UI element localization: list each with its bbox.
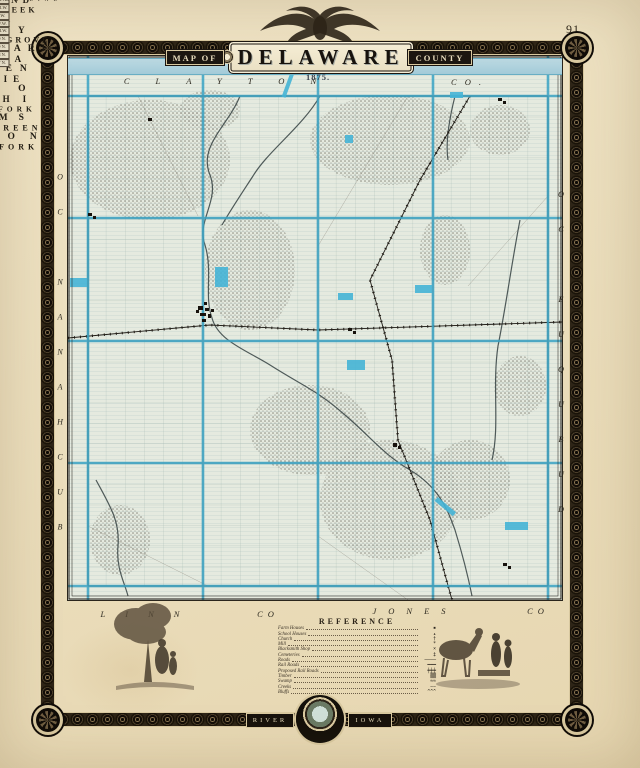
legend-leader (293, 688, 418, 689)
map-note-text: CORRECTION LINE (0, 0, 62, 3)
corner-rosette-icon (562, 705, 592, 735)
map-art (68, 56, 562, 600)
range-label-text: T.89 N. (0, 44, 6, 49)
legend: REFERENCE Farm Houses ▪ School Houses ▴ … (278, 617, 436, 695)
legend-leader (288, 645, 418, 646)
legend-item-label: Bluffs (278, 690, 289, 695)
border-medallion-icon (296, 695, 344, 743)
map-canvas (68, 56, 562, 600)
range-label-text: T.90 N. (0, 36, 6, 41)
border-word-left: RIVER (246, 713, 294, 728)
legend-leader (312, 650, 418, 651)
township-name: SOUTH FORK (0, 143, 38, 152)
legend-leader (302, 656, 418, 657)
title-prefix-banner: MAP OF (166, 50, 224, 65)
range-label: R.IV.W. (0, 20, 9, 28)
township-name: HAZELGREEN (0, 124, 42, 133)
legend-leader (292, 661, 418, 662)
legend-item-label: Roads (278, 658, 290, 663)
legend-item-label: Proposed Rail Roads (278, 669, 319, 674)
map-note: CORRECTION LINE (0, 0, 62, 3)
title-county-name: DELAWARE (237, 45, 404, 70)
range-tier-labels: R.VI.W.R.VI.W.R.V.W.R.IV.W.R.III.W.T.90 … (0, 0, 19, 71)
legend-item-label: Cemeteries (278, 653, 300, 658)
range-label-text: T.88 N. (0, 52, 6, 57)
range-label: R.VI.W. (0, 4, 9, 12)
legend-item-label: Mill (278, 642, 286, 647)
range-label-text: R.III.W. (0, 28, 7, 33)
township-name: RICHLAND (0, 0, 34, 5)
legend-leader (294, 677, 418, 678)
range-label-text: R.VI.W. (0, 5, 7, 10)
atlas-page: 91 RIVER IOWA (0, 0, 640, 768)
corner-rosette-icon (33, 705, 63, 735)
range-label: T.89 N. (0, 43, 9, 51)
legend-row: Bluffs ^^^ (278, 690, 436, 695)
range-label-text: R.V.W. (0, 13, 5, 18)
legend-title: REFERENCE (278, 617, 436, 626)
legend-item-label: Timber (278, 674, 292, 679)
township-label: HONEY CREEK (0, 6, 55, 15)
legend-leader (294, 640, 418, 641)
township-label: ELK (0, 14, 55, 25)
township-name: ELK (0, 14, 32, 25)
range-label-text: R.VI.W. (0, 0, 7, 2)
map-annotations: CORRECTION LINEMANCHESTERGrove Creek (0, 0, 124, 16)
township-name: ADAMS (0, 113, 35, 123)
legend-leader (321, 672, 418, 673)
range-label-text: T.87 N. (0, 60, 6, 65)
legend-leader (294, 682, 418, 683)
county-label-linn-co: CO (257, 609, 279, 619)
legend-item-label: Blacksmith Shop (278, 647, 310, 652)
legend-item-label: Farm Houses (278, 626, 304, 631)
legend-leader (301, 666, 418, 667)
corner-rosette-icon (33, 33, 63, 63)
legend-item-label: School Houses (278, 632, 306, 637)
township-name: NORTH FORK (0, 105, 36, 114)
legend-item-label: Swamp (278, 679, 292, 684)
title-prefix: MAP OF (173, 53, 218, 63)
map-note: Grove Creek (0, 9, 62, 14)
ornate-border-right (569, 40, 584, 727)
county-label-buchanan: OC NANAHCUB (56, 173, 65, 558)
corner-rosette-icon (562, 33, 592, 63)
township-name: BREMEN (0, 64, 35, 74)
township-name: HONEY CREEK (0, 6, 38, 15)
legend-leader (308, 635, 418, 636)
township-name: PRAIRIE (0, 74, 25, 84)
range-label: T.90 N. (0, 35, 9, 43)
title-suffix: COUNTY (416, 53, 465, 63)
county-label-jones-co: CO (527, 606, 549, 616)
township-name: DELHI (0, 94, 39, 104)
legend-leader (291, 693, 418, 694)
map-note: MANCHESTER (0, 4, 62, 9)
township-name: MILO (0, 84, 43, 94)
legend-item-label: Creeks (278, 685, 291, 690)
range-label: R.VI.W. (0, 0, 9, 4)
range-label-text: R.IV.W. (0, 21, 7, 26)
legend-item-label: Rail Roads (278, 663, 299, 668)
range-label: T.88 N. (0, 51, 9, 59)
range-label: T.87 N. (0, 59, 9, 67)
legend-item-label: Church (278, 637, 292, 642)
vignette-left-icon (98, 596, 210, 700)
township-label: RICHLAND (0, 0, 55, 5)
legend-leader (306, 629, 418, 630)
title-scroll: DELAWARE (228, 41, 414, 74)
legend-items: Farm Houses ▪ School Houses ▴ Church † (278, 626, 436, 695)
border-word-right: IOWA (348, 713, 392, 728)
vignette-right-icon (426, 610, 530, 692)
ornate-border-left (40, 40, 55, 727)
range-label: R.V.W. (0, 12, 9, 20)
title-suffix-banner: COUNTY (408, 50, 472, 65)
range-label: R.III.W. (0, 27, 9, 35)
township-name: ONEIDA (0, 54, 29, 64)
title-year: 1875. (306, 72, 330, 82)
township-name: COLONY (0, 25, 33, 35)
